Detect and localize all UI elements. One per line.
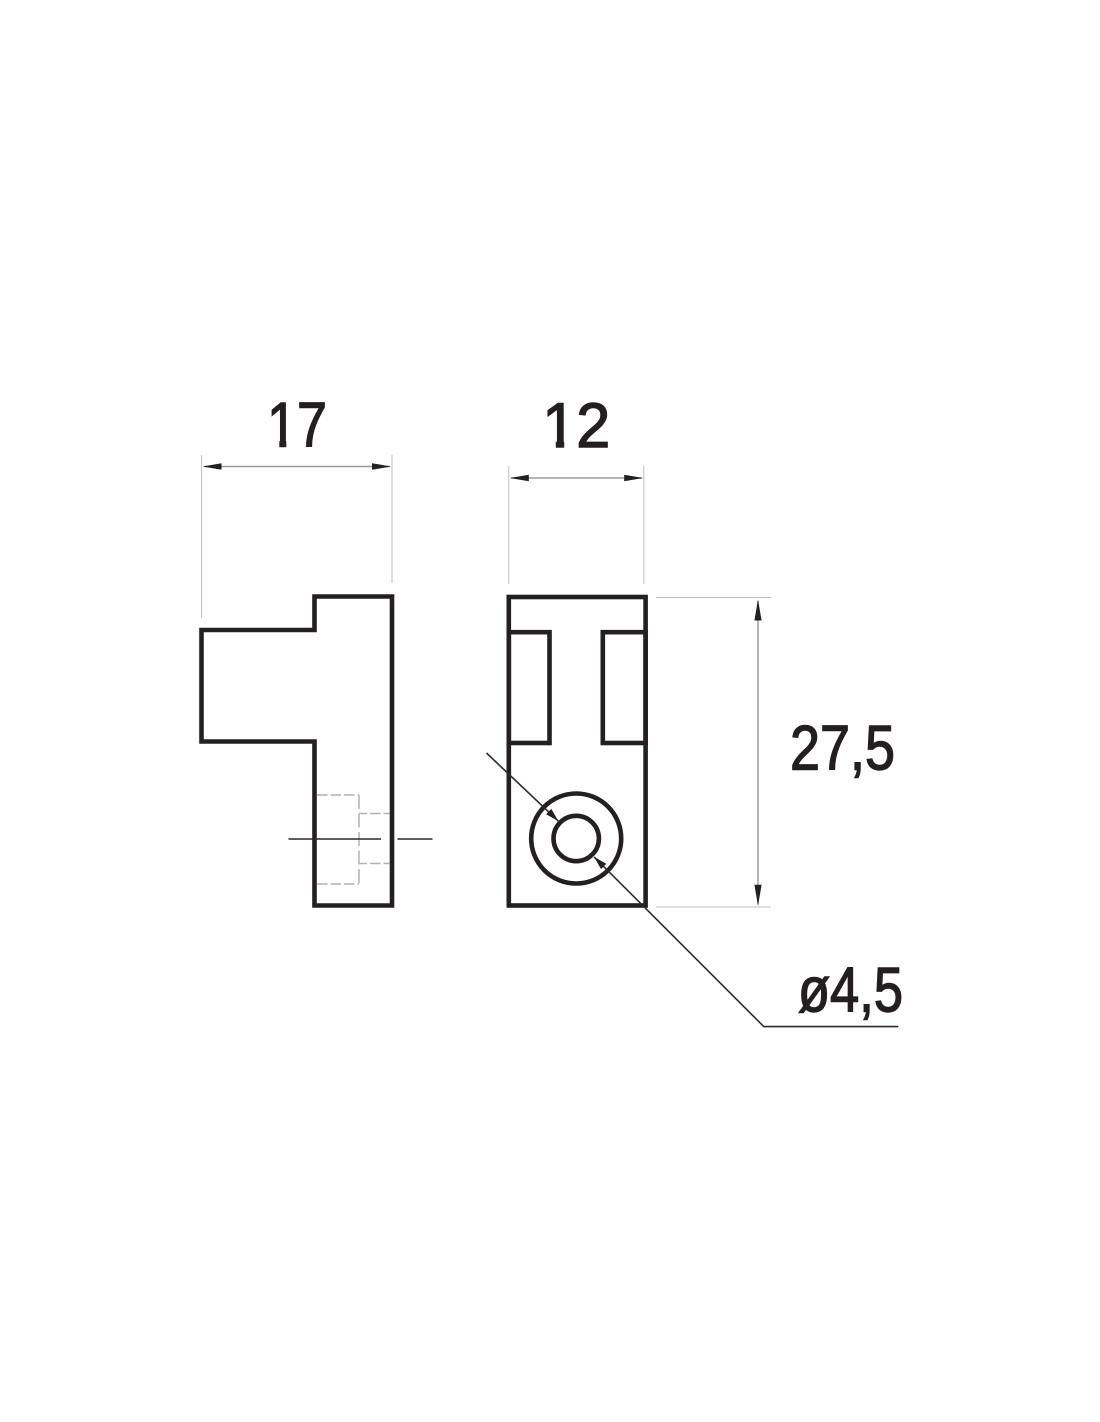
svg-text:12: 12 — [542, 391, 610, 461]
svg-text:ø4,5: ø4,5 — [798, 956, 903, 1026]
svg-text:17: 17 — [267, 391, 327, 461]
svg-text:27,5: 27,5 — [790, 714, 895, 784]
